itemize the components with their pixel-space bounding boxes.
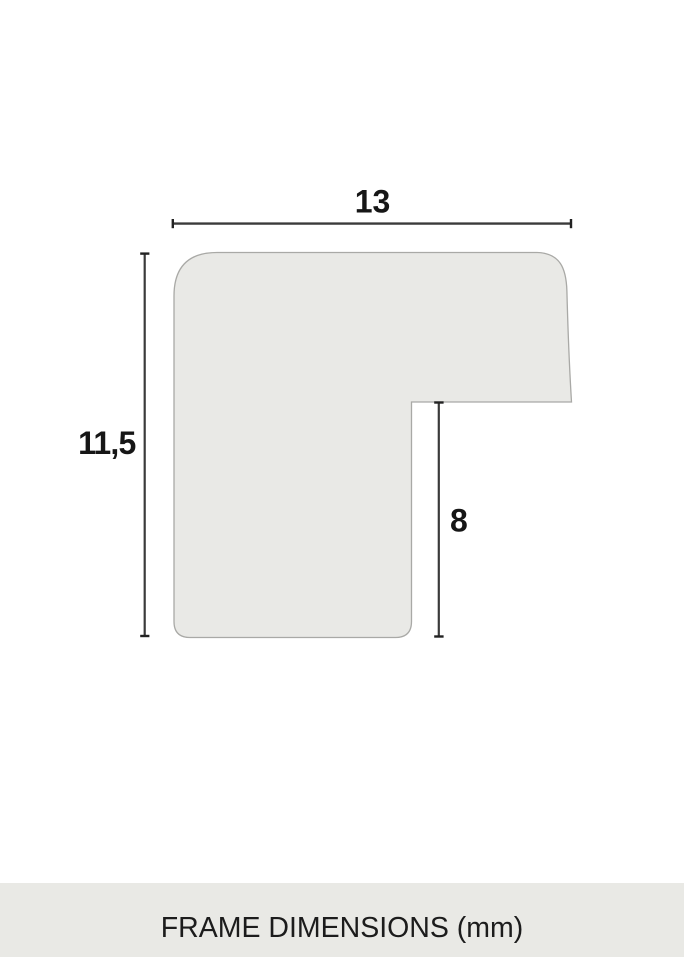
svg-text:8: 8 bbox=[450, 503, 468, 539]
svg-text:13: 13 bbox=[355, 184, 391, 220]
svg-text:11,5: 11,5 bbox=[78, 425, 135, 461]
svg-text:FRAME DIMENSIONS (mm): FRAME DIMENSIONS (mm) bbox=[161, 912, 524, 944]
